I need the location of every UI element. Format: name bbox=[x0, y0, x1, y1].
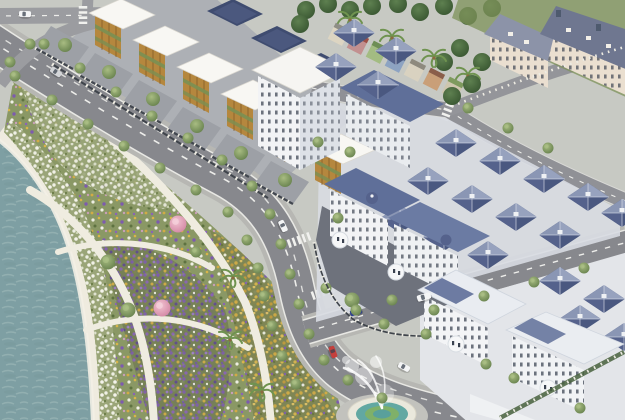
park-tree bbox=[101, 255, 116, 270]
garden-shrub bbox=[575, 403, 586, 414]
yard-tree bbox=[345, 147, 356, 158]
garden-shrub bbox=[509, 373, 520, 384]
mansion-tree bbox=[463, 75, 481, 93]
villa-dome bbox=[441, 235, 452, 246]
park-tree bbox=[121, 303, 136, 318]
garden-shrub bbox=[481, 359, 492, 370]
fountain-center bbox=[373, 410, 391, 419]
villa-dome bbox=[366, 192, 378, 204]
aerial-render: Aerial rendering of a coastal residentia… bbox=[0, 0, 625, 420]
pink-blossom-tree bbox=[154, 300, 171, 317]
yard-tree bbox=[313, 137, 324, 148]
garden-shrub bbox=[421, 329, 432, 340]
street-stub bbox=[87, 0, 88, 18]
render-canvas: Waterfront residential masterplan — aeri… bbox=[0, 0, 625, 420]
mansion-tree bbox=[443, 87, 461, 105]
bay-window bbox=[452, 341, 454, 345]
bay-window bbox=[458, 343, 460, 347]
pink-blossom-tree bbox=[170, 216, 187, 233]
chimney bbox=[596, 24, 601, 31]
chimney bbox=[556, 10, 561, 17]
courtyard-tree bbox=[333, 213, 344, 224]
dome-lantern bbox=[370, 194, 373, 197]
park-shrub bbox=[191, 247, 202, 258]
bay-window bbox=[544, 385, 546, 389]
villa-bay bbox=[448, 336, 464, 352]
